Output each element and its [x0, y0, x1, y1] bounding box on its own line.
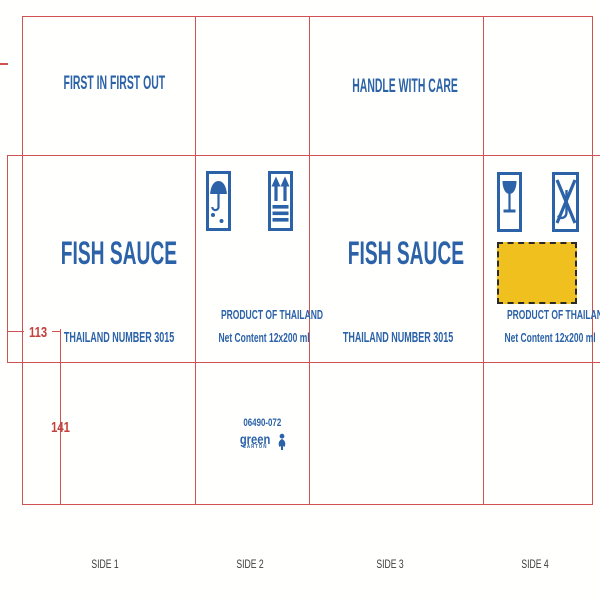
side4-product-label: PRODUCT OF THAILAND	[507, 309, 600, 322]
logo-subtext: CARTON	[238, 445, 272, 450]
side4-net-content-line: Net Content 12x200 ml	[483, 332, 593, 345]
flap3-text: HANDLE WITH CARE	[309, 77, 483, 97]
print-job-code-label: 06490-072	[243, 418, 281, 430]
side2-product-label: PRODUCT OF THAILAND	[221, 309, 323, 322]
side2-caption-label: SIDE 2	[236, 558, 263, 571]
keep-dry-icon	[206, 171, 231, 231]
flap3-text-label: HANDLE WITH CARE	[352, 77, 458, 97]
side4-caption-label: SIDE 4	[521, 558, 548, 571]
dimension-141-label: 141	[51, 419, 70, 436]
flap1-text-label: FIRST IN FIRST OUT	[64, 74, 166, 94]
dimension-141: 141	[48, 419, 73, 436]
side3-title-label: FISH SAUCE	[348, 237, 464, 271]
side4-caption: SIDE 4	[485, 558, 585, 571]
stray-red-tick	[0, 63, 8, 65]
print-job-code: 06490-072	[197, 418, 327, 430]
label-placement-area	[497, 242, 577, 304]
cut-line-bottom	[22, 504, 593, 505]
dimension-113: 113	[24, 324, 52, 341]
logo-mascot-icon	[276, 433, 288, 451]
side1-subtitle-label: THAILAND NUMBER 3015	[64, 331, 174, 346]
side2-net-content-label: Net Content 12x200 ml	[218, 332, 309, 345]
side1-caption-label: SIDE 1	[91, 558, 118, 571]
side1-title-label: FISH SAUCE	[61, 237, 177, 271]
side2-net-content-line: Net Content 12x200 ml	[197, 332, 309, 345]
side3-subtitle: THAILAND NUMBER 3015	[309, 331, 483, 346]
green-carton-logo: green CARTON	[197, 433, 327, 451]
dieline-sheet: FIRST IN FIRST OUT HANDLE WITH CARE FISH…	[0, 0, 600, 600]
no-hand-hooks-icon	[552, 172, 579, 232]
side3-title: FISH SAUCE	[309, 237, 483, 271]
fold-line-panel-bottom	[7, 362, 600, 363]
dimension-113-label: 113	[29, 324, 47, 341]
dimension-line-vertical	[60, 329, 61, 504]
fold-line-panel-top	[7, 155, 600, 156]
side3-caption-label: SIDE 3	[376, 558, 403, 571]
fold-line-side1-side2	[195, 16, 196, 504]
side2-caption: SIDE 2	[200, 558, 300, 571]
side3-caption: SIDE 3	[340, 558, 440, 571]
side1-caption: SIDE 1	[55, 558, 155, 571]
side2-product-line: PRODUCT OF THAILAND	[197, 309, 309, 322]
side3-subtitle-label: THAILAND NUMBER 3015	[343, 331, 453, 346]
flap1-text: FIRST IN FIRST OUT	[22, 74, 195, 94]
cut-line-right	[592, 16, 593, 504]
side4-net-content-label: Net Content 12x200 ml	[504, 332, 595, 345]
this-way-up-icon	[268, 171, 293, 231]
cut-line-top	[22, 16, 592, 17]
side4-product-line: PRODUCT OF THAILAND	[483, 309, 593, 322]
fold-line-side3-side4	[483, 16, 484, 504]
side1-title: FISH SAUCE	[22, 237, 195, 271]
side1-subtitle: THAILAND NUMBER 3015	[30, 331, 203, 346]
fragile-glass-icon	[497, 172, 522, 232]
